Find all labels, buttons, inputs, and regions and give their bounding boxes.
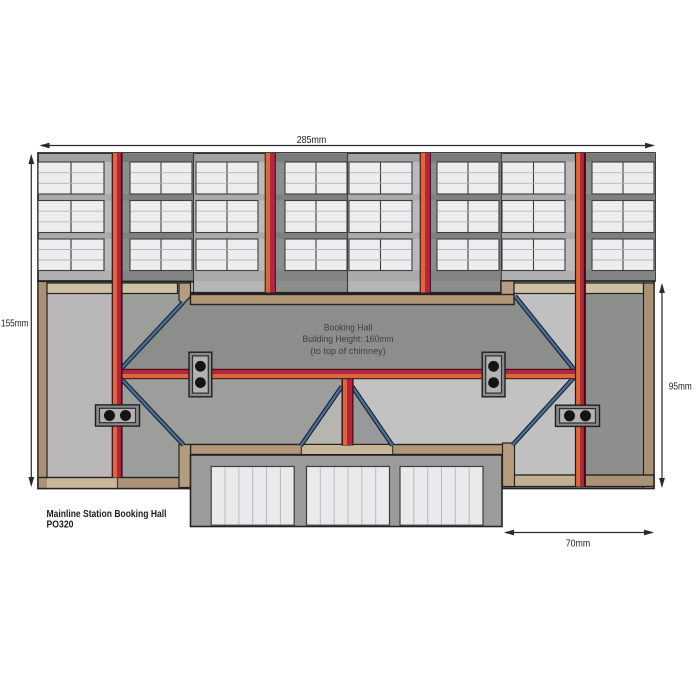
- svg-text:70mm: 70mm: [566, 538, 591, 550]
- svg-text:155mm: 155mm: [1, 318, 29, 330]
- svg-text:Booking Hall: Booking Hall: [324, 323, 373, 334]
- svg-text:PO320: PO320: [47, 519, 74, 531]
- svg-text:(to top of chimney): (to top of chimney): [310, 346, 386, 357]
- svg-text:285mm: 285mm: [297, 134, 327, 146]
- svg-text:Building Height: 160mm: Building Height: 160mm: [303, 334, 394, 345]
- svg-text:95mm: 95mm: [669, 381, 692, 393]
